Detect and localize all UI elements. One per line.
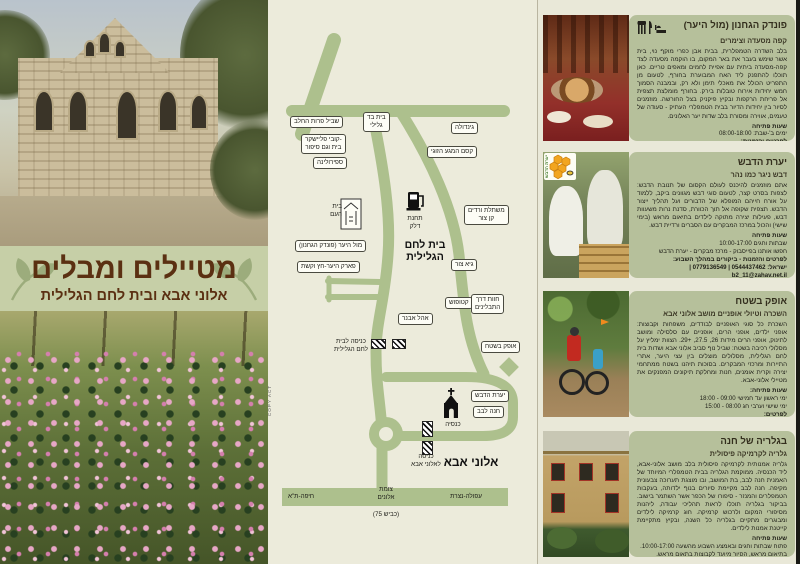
listing-textbox: פונדק הגחנון (מול היער) קפה מסעדה וצימרי… (629, 15, 795, 141)
map-road-75: (כביש 75) (364, 511, 408, 519)
plate (547, 111, 571, 123)
roofline (543, 451, 629, 454)
railway-crossing-icon (371, 339, 386, 349)
map-label-bethlehem-entrance: כניסה לבית לחם הגלילית (330, 338, 372, 353)
beekeeper-suit (587, 170, 623, 250)
brochure-subtitle: אלוני אבא ובית לחם הגלילית (0, 288, 268, 304)
gas-pump-icon (407, 192, 424, 211)
red-framed-window (551, 463, 565, 481)
gable-window (100, 34, 109, 52)
map-label-spirulina: ספירולינה (313, 157, 347, 169)
map-label-spice-farm: חוות דרך התבלינים (471, 294, 504, 314)
map-label-gindola: גינדולה (451, 122, 478, 134)
map-label-fleischaker-house: קובי פליישקר- בית וגם סיפור (301, 134, 346, 154)
hours-lines: ימי ראשון עד חמישי 09:00 - 18:00 ימי שיש… (637, 395, 787, 411)
map-road-haifa: חיפה-ת"א (284, 493, 318, 501)
hours-lines: פתוח שבתות וחגים ובאמצע השבוע מהשעה 10:0… (637, 543, 787, 557)
gable-window (86, 42, 94, 56)
listing-card-bikes: אופק בשטח השכרה וטיולי אופניים מושב אלונ… (543, 291, 795, 417)
hours-title: שעות פתיחה (637, 535, 787, 543)
contact-lines: ישראל: 0544437462 | 0779136549 | b2_11@z… (637, 264, 787, 278)
listing-title: יערת הדבש (637, 158, 787, 169)
listing-title: פונדק הגחנון (מול היער) (684, 21, 787, 32)
red-framed-window (605, 463, 619, 481)
rider-helmet (570, 327, 579, 336)
map-roads (268, 0, 538, 564)
brochure-title: מטיילים ומבלים (0, 253, 268, 286)
listing-body: השכרת כל סוגי האופניים לבודדים, משפחות ו… (637, 321, 787, 386)
print-credit: COPY ACT (267, 385, 272, 416)
arched-door (118, 92, 136, 138)
contact-title: לפרטים והזמנות - ביקורים במהלך השבוע: (637, 256, 787, 264)
listing-textbox: אופק בשטח השכרה וטיולי אופניים מושב אלונ… (629, 291, 795, 417)
map-label-avner-tent: אהל אבנר (398, 313, 433, 325)
listing-body: גלריה אמנותית לקרמיקה פיסולית בלב מושב א… (637, 461, 787, 534)
arched-window (160, 92, 176, 130)
cyclamen-field-photo (0, 311, 268, 564)
listing-title: אופק בשטח (637, 297, 787, 308)
listing-card-gallery: בגלריה של חנה גלריה לקרמיקה פיסולית גלרי… (543, 431, 795, 557)
listing-subtitle: קפה מסעדה וצימרים (637, 36, 787, 45)
plate (583, 115, 613, 128)
red-framed-window (551, 493, 565, 513)
listing-title: בגלריה של חנה (637, 437, 787, 448)
bike-wheel (559, 369, 585, 395)
beehive-boxes (579, 244, 629, 278)
food-platter (551, 77, 603, 103)
listing-textbox: בגלריה של חנה גלריה לקרמיקה פיסולית גלרי… (629, 431, 795, 557)
map-label-community-house: בית העם (318, 203, 342, 218)
contact-title: לפרטים: (637, 411, 787, 417)
listing-subtitle: גלריה לקרמיקה פיסולית (637, 449, 787, 458)
utensils-and-bed-icon (637, 21, 667, 35)
scan-edge (796, 0, 800, 564)
map-label-katufush: קטופוש (445, 297, 473, 309)
listing-subtitle: השכרה וטיולי אופניים מושב אלוני אבא (637, 309, 787, 318)
cycling-photo (543, 291, 629, 417)
listing-body: בלב השדרה הטמפלרית, בבית אבן כפרי מוקף נ… (637, 48, 787, 121)
map-label-forest-inn: מול היער (פונדק הגחנון) (295, 240, 366, 252)
map-label-ofek-bashetach: אופק בשטח (481, 341, 520, 353)
map-label-gas-station: תחנת דלק (404, 215, 426, 230)
map-label-olive-press: בית בד גלילי (363, 112, 390, 132)
title-banner: מטיילים ומבלים אלוני אבא ובית לחם הגלילי… (0, 246, 268, 311)
church-icon (444, 388, 458, 418)
map-label-hana-levav: חנה לבב (473, 406, 504, 418)
map-label-church: כנסיה (440, 421, 466, 429)
arched-window (192, 96, 206, 128)
community-house-sketch-icon (341, 199, 361, 229)
map-label-milk-cows-trail: שביל פרות החלב (290, 116, 343, 128)
trees (543, 291, 629, 351)
stone-house-photo (543, 431, 629, 557)
red-framed-window (579, 463, 593, 481)
listing-card-inn: פונדק הגחנון (מול היער) קפה מסעדה וצימרי… (543, 15, 795, 141)
area-map: P שביל פרות החלב בית בד גלילי גינדולה קו… (268, 0, 538, 564)
listing-textbox: יערת הדבש דבש ניגר כמו נהר אתם מוזמנים ל… (629, 152, 795, 278)
cyclamen-flowers (0, 351, 268, 564)
garden-bush (547, 527, 577, 549)
building-gable (60, 18, 170, 73)
map-road-afula: עפולה-נצרת (444, 493, 488, 501)
fold-line (537, 0, 538, 564)
child-blue-suit (593, 349, 603, 369)
hours-title: שעות פתיחה (637, 232, 787, 240)
map-label-honey-forest: יערת הדבש (471, 390, 509, 402)
honey-logo: יערת הדבש (544, 153, 576, 180)
hours-title: שעות פתיחה (637, 123, 787, 131)
beekeeper-suit (549, 186, 583, 256)
listing-card-honey: יערת הדבש יערת הדבש דבש ניגר כמו נהר אתם… (543, 152, 795, 278)
restaurant-photo (543, 15, 629, 141)
gable-window (116, 42, 124, 56)
listing-body: אתם מוזמנים להיכנס לעולם הקסום של תנובת … (637, 182, 787, 230)
map-label-rose-nursery: משתלת ורדים קן צור (464, 205, 509, 225)
chairs (543, 15, 629, 73)
garden-bush (595, 529, 629, 553)
honey-logo-text: יערת הדבש (544, 155, 549, 178)
arched-window (70, 92, 86, 130)
beekeepers-photo: יערת הדבש (543, 152, 629, 278)
hours-title: שעות פתיחה: (637, 387, 787, 395)
map-label-magic-touch: קסם המגע הזוגי (427, 146, 477, 158)
railway-crossing-icon (422, 421, 433, 437)
listing-subtitle: דבש ניגר כמו נהר (637, 170, 787, 179)
contact-title: לפרטים והזמנות: (637, 138, 787, 141)
arched-window (36, 92, 52, 130)
brochure-page: מטיילים ומבלים אלוני אבא ובית לחם הגלילי… (0, 0, 800, 564)
map-road-alonim-junction: צומת אלונים (366, 486, 406, 501)
map-town-alonei-abba: אלוני אבא (436, 455, 506, 469)
map-town-bethlehem: בית לחם הגלילית (394, 239, 456, 263)
bike-wheel (585, 371, 609, 395)
red-framed-window (605, 493, 619, 513)
hours-lines: שבתות וחגים 10:00-17:00 חפשו אותנו בפייס… (637, 240, 787, 256)
railway-crossing-icon (392, 339, 406, 349)
rider-red-shirt (567, 335, 581, 361)
map-label-archery-park: פארק היער-חץ וקשת (297, 261, 360, 273)
stone-building-photo (0, 0, 268, 246)
